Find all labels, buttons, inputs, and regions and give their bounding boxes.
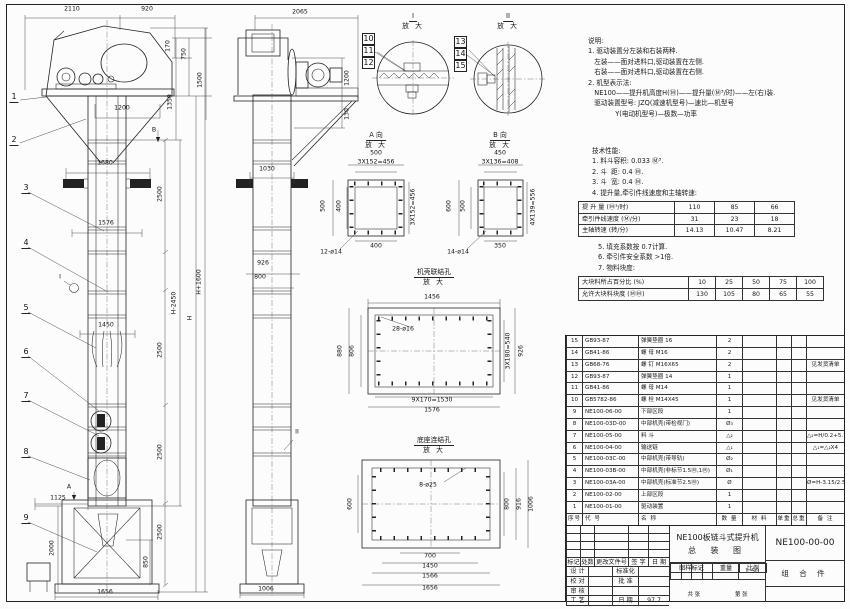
view-A-detail [333, 165, 409, 249]
table-cell: NE100-05-00 [582, 431, 638, 443]
shell-holes-title: 机壳联结孔放 大 [414, 268, 454, 286]
title-block-revision-area: 标记处数更改文件号签 字日 期 设 计标准化校 对批 准审 核工 艺日 期97.… [566, 526, 669, 602]
table-cell: 签 字 [628, 558, 648, 567]
table-cell: GB93-87 [582, 336, 638, 348]
dim-label: 750 [181, 48, 188, 60]
table-cell [628, 534, 648, 542]
table-row [566, 550, 669, 558]
table-cell [806, 372, 844, 384]
table-cell [638, 567, 669, 577]
table-cell: 螺 母 M14 [638, 383, 716, 395]
table-cell: 97.7 [638, 596, 669, 606]
table-cell [791, 395, 806, 407]
table-row: 7NE100-05-00料 斗△₂△₂=H/0.2+5.75 [566, 431, 844, 443]
dim-label: 1566 [422, 573, 438, 580]
text-line: 1. 料斗容积: 0.033 Ⓜ³. [592, 156, 697, 166]
table-cell [742, 407, 776, 419]
dim-label: 3X152=456 [410, 189, 417, 226]
dim-label: 600 [347, 498, 354, 510]
part-balloon: 11 [362, 45, 375, 57]
table-cell: 标准化 [612, 567, 638, 577]
view-B-title: B 向放 大 [489, 131, 511, 149]
table-cell: 更改文件号 [594, 558, 628, 567]
table-cell: 13 [566, 360, 582, 372]
table-cell [628, 526, 648, 534]
bom-table: 15GB93-87弹簧垫圈 16214GB41-86螺 母 M16213GB68… [565, 335, 844, 526]
dim-label: 1125 [50, 495, 66, 502]
table-cell [791, 360, 806, 372]
table-cell: GB41-86 [582, 348, 638, 360]
notes-block: 说明:1. 驱动装置分左装和右装两种. 左装——面对进料口,驱动装置在左侧. 右… [588, 36, 775, 119]
dim-label: 1456 [424, 294, 440, 301]
table-row [566, 534, 669, 542]
table-cell: 数 量 [716, 514, 742, 526]
tech-spec-block: 技术性能:1. 料斗容积: 0.033 Ⓜ³.2. 斗 距: 0.4 Ⓜ.3. … [592, 146, 697, 198]
table-cell: 螺 母 M16 [638, 348, 716, 360]
table-cell: 14.13 [674, 225, 714, 237]
text-line: 4. 提升量,牵引件线速度和主轴转速: [592, 188, 697, 198]
table-cell [806, 419, 844, 431]
table-cell: 材 料 [742, 514, 776, 526]
table-cell [566, 526, 580, 534]
table-cell: GB41-86 [582, 383, 638, 395]
table-cell [776, 490, 791, 502]
table-cell [776, 407, 791, 419]
table-cell: NE100-02-00 [582, 490, 638, 502]
dim-label: 1030 [259, 166, 275, 173]
table-cell [580, 550, 594, 558]
detail-I-title: I放 大 [402, 12, 424, 30]
table-cell [806, 490, 844, 502]
drawing-sheet: 2110920170750135015001200B168025001576H+… [0, 0, 850, 609]
table-cell [806, 336, 844, 348]
dim-label: B [152, 127, 156, 134]
text-line: 左装——面对进料口,驱动装置在左侧. [588, 57, 775, 67]
text-line: 说明: [588, 36, 775, 46]
table-cell: Ø₁ [716, 466, 742, 478]
table-cell [806, 407, 844, 419]
view-B-detail [459, 165, 527, 249]
dim-label: 2500 [157, 186, 164, 202]
table-cell: 牵引件线速度 (Ⓜ/分) [578, 214, 674, 226]
table-cell: 弹簧垫圈 16 [638, 336, 716, 348]
table-cell: △₁=△₂X4 [806, 443, 844, 455]
table-cell: 85 [714, 202, 754, 214]
table-cell: 130 [688, 289, 715, 301]
table-cell [791, 466, 806, 478]
table-cell [742, 502, 776, 514]
table-cell: 料 斗 [638, 431, 716, 443]
stamp-area: 图样标记重量比例 1:50 [670, 563, 765, 590]
title-block-right: NE100-00-00 组 合 件 [765, 526, 844, 602]
table-row: 12GB93-87弹簧垫圈 141 [566, 372, 844, 384]
table-cell: 中部机壳(带检视门) [638, 419, 716, 431]
table-cell: 见发货清单 [806, 395, 844, 407]
table-row: 6NE100-04-00输送链△₁△₁=△₂X4 [566, 443, 844, 455]
dim-label: II [295, 429, 299, 436]
table-cell: 中部机壳(带导轨) [638, 454, 716, 466]
table-cell [776, 360, 791, 372]
dim-label: 2110 [64, 6, 80, 13]
text-line: 右装——面对进料口,驱动装置在右侧. [588, 67, 775, 77]
part-balloon: 14 [454, 48, 467, 60]
dim-label: H [187, 316, 194, 321]
table-cell [742, 443, 776, 455]
view-A-title: A 向放 大 [365, 131, 387, 149]
side-view [234, 15, 358, 598]
table-cell: Ø₃ [716, 419, 742, 431]
table-cell: △₂=H/0.2+5.75 [806, 431, 844, 443]
dim-label: 1450 [98, 322, 114, 329]
dim-label: 1200 [114, 105, 130, 112]
table-cell: △₂ [716, 431, 742, 443]
table-row: 审 核 [566, 587, 669, 597]
table-cell: GB93-87 [582, 372, 638, 384]
table-cell: 4 [566, 466, 582, 478]
table-cell: Ø=H-3.15/2.5 [806, 478, 844, 490]
dim-label: 2065 [292, 9, 308, 16]
title-block: 标记处数更改文件号签 字日 期 设 计标准化校 对批 准审 核工 艺日 期97.… [565, 525, 843, 601]
table-cell: Ø [716, 478, 742, 490]
table-cell: 序号 [566, 514, 582, 526]
part-classification: 组 合 件 [766, 561, 844, 587]
table-row [566, 526, 669, 534]
text-line: Y(电动机型号)—极数—功率 [588, 109, 775, 119]
table-cell: 1 [716, 502, 742, 514]
table-cell [580, 534, 594, 542]
table-row: 3NE100-03A-00中部机壳(标准节2.5Ⓜ)ØØ=H-3.15/2.5 [566, 478, 844, 490]
table-row [566, 542, 669, 550]
table-cell [806, 383, 844, 395]
dim-label: 1576 [424, 407, 440, 414]
front-view [27, 20, 174, 596]
table-row: 10GB5782-86螺 栓 M14X451见发货清单 [566, 395, 844, 407]
text-line: 驱动装置型号: JZQ(减速机型号)—速比—机型号 [588, 98, 775, 108]
part-balloon: 12 [362, 57, 375, 69]
dim-label: 12-ø14 [320, 249, 342, 256]
table-cell [806, 502, 844, 514]
table-cell: 18 [754, 214, 794, 226]
dim-label: 4X139=556 [530, 189, 537, 226]
table-cell [776, 395, 791, 407]
table-cell: NE100-06-00 [582, 407, 638, 419]
table-cell [742, 431, 776, 443]
table-cell [776, 478, 791, 490]
table-cell: 2 [716, 348, 742, 360]
drawing-type: 总 装 图 [670, 544, 765, 557]
table-row: 图样标记重量比例 [670, 564, 766, 573]
table-cell [580, 542, 594, 550]
table-cell [648, 542, 669, 550]
table-row: 标记处数更改文件号签 字日 期 [566, 558, 669, 567]
table-row: 牵引件线速度 (Ⓜ/分)312318 [578, 214, 794, 226]
dim-label: 926 [257, 260, 269, 267]
dim-label: 1200 [344, 70, 351, 86]
product-name: NE100板链斗式提升机 [670, 531, 765, 544]
table-cell: 大块料所占百分比 (%) [578, 277, 688, 289]
table-cell [566, 534, 580, 542]
dim-label: 1006 [528, 496, 535, 512]
table-cell [594, 526, 628, 534]
table-cell: 1 [716, 395, 742, 407]
dim-label: 2000 [49, 540, 56, 556]
table-cell: 校 对 [566, 577, 588, 587]
table-cell: 处数 [580, 558, 594, 567]
table-cell: 55 [796, 289, 823, 301]
table-cell: 下部区段 [638, 407, 716, 419]
table-row: 8NE100-03D-00中部机壳(带检视门)Ø₃ [566, 419, 844, 431]
table-cell: GB68-76 [582, 360, 638, 372]
revision-header-row: 标记处数更改文件号签 字日 期 [566, 558, 669, 567]
table-cell: 螺 钉 M16X65 [638, 360, 716, 372]
table-cell [742, 466, 776, 478]
table-cell: 23 [714, 214, 754, 226]
table-cell: 75 [769, 277, 796, 289]
dim-label: 1450 [422, 563, 438, 570]
table-cell: 比例 [739, 564, 766, 573]
part-balloon: 2 [9, 136, 18, 146]
shell-holes-detail [349, 299, 515, 407]
dim-label: 350 [494, 243, 506, 250]
dim-label: 800 [504, 498, 511, 510]
dim-label: 1500 [197, 72, 204, 88]
table-cell [566, 542, 580, 550]
table-cell: 50 [742, 277, 769, 289]
table-cell [776, 502, 791, 514]
dim-label: H+1600 [196, 269, 203, 295]
table-cell [742, 419, 776, 431]
table-cell: △₁ [716, 443, 742, 455]
table-cell: 审 核 [566, 587, 588, 597]
table-cell: NE100-03D-00 [582, 419, 638, 431]
table-row: 工 艺日 期97.7 [566, 596, 669, 606]
sheet-total: 共 张 [670, 590, 718, 601]
table-cell: 日 期 [648, 558, 669, 567]
table-row: 9NE100-06-00下部区段1 [566, 407, 844, 419]
dim-label: 130 [344, 108, 351, 120]
dim-label: H-2450 [171, 292, 178, 315]
table-cell: GB5782-86 [582, 395, 638, 407]
table-cell: 标记 [566, 558, 580, 567]
text-line: 2. 机型表示法: [588, 78, 775, 88]
table-cell [791, 502, 806, 514]
table-cell [806, 454, 844, 466]
dim-label: 700 [424, 553, 436, 560]
dim-label: 800 [254, 274, 266, 281]
part-balloon: 13 [454, 36, 467, 48]
dim-label: 920 [141, 6, 153, 13]
table-cell: 输送链 [638, 443, 716, 455]
table-cell: 总重 [791, 514, 806, 526]
table-cell [791, 407, 806, 419]
table-cell: 10.47 [714, 225, 754, 237]
table-cell: 弹簧垫圈 14 [638, 372, 716, 384]
table-cell [776, 383, 791, 395]
table-cell: 66 [754, 202, 794, 214]
table-cell [588, 577, 612, 587]
table-cell [742, 454, 776, 466]
detail-I [372, 40, 454, 116]
table-cell [594, 542, 628, 550]
revision-empty-rows [566, 526, 669, 558]
dim-label: 9X170=1530 [412, 397, 453, 404]
table-cell: 日 期 [612, 596, 638, 606]
table-cell: 工 艺 [566, 596, 588, 606]
dim-label: 500 [370, 150, 382, 157]
table-row: 提 升 量 (Ⓜ³/时)1108566 [578, 202, 794, 214]
dim-label: 500 [320, 200, 327, 212]
table-cell: 2 [716, 336, 742, 348]
front-view-dims [20, 15, 212, 600]
dim-label: 3X136=408 [482, 159, 519, 166]
table-cell: 10 [688, 277, 715, 289]
table-cell: NE100-04-00 [582, 443, 638, 455]
table-cell: 105 [715, 289, 742, 301]
balloon-leaders [375, 52, 495, 76]
table-cell: 8 [566, 419, 582, 431]
table-cell [648, 550, 669, 558]
dim-label: 600 [446, 200, 453, 212]
dim-label: 916 [516, 498, 523, 510]
table-cell: 10 [566, 395, 582, 407]
table-cell: 单重 [776, 514, 791, 526]
table-cell: 100 [796, 277, 823, 289]
text-line: 3. 斗 宽: 0.4 Ⓜ. [592, 177, 697, 187]
drawing-title: NE100板链斗式提升机 总 装 图 [670, 526, 765, 563]
table-cell: NE100-01-00 [582, 502, 638, 514]
table-cell [612, 587, 638, 597]
table-cell [791, 372, 806, 384]
part-balloon: 9 [21, 514, 30, 524]
table-cell [742, 383, 776, 395]
table-cell: 批 准 [612, 577, 638, 587]
table-cell [791, 431, 806, 443]
dim-label: 400 [336, 200, 343, 212]
table-cell [806, 348, 844, 360]
table-cell [742, 478, 776, 490]
table-cell: 1 [716, 383, 742, 395]
table-row: 15GB93-87弹簧垫圈 162 [566, 336, 844, 348]
table-cell: NE100-03C-00 [582, 454, 638, 466]
dim-label: 1576 [98, 220, 114, 227]
table-cell [580, 526, 594, 534]
table-row: 1NE100-01-00驱动装置1 [566, 502, 844, 514]
dim-label: 500 [460, 200, 467, 212]
table-cell [594, 534, 628, 542]
part-balloon: 3 [21, 184, 30, 194]
text-line: 1. 驱动装置分左装和右装两种. [588, 46, 775, 56]
dim-label: 8-ø25 [419, 482, 437, 489]
table-cell: 图样标记 [670, 564, 712, 573]
dim-label: 2500 [157, 342, 164, 358]
table-cell: 5 [566, 454, 582, 466]
table-cell [648, 534, 669, 542]
table-cell [638, 577, 669, 587]
table-row: 允许大块料块度 (ⓂⓂ)130105806555 [578, 289, 823, 301]
dim-label: 850 [143, 556, 150, 568]
table-row: 主轴转速 (转/分)14.1310.478.21 [578, 225, 794, 237]
dim-label: 1350 [167, 94, 174, 110]
text-line: 技术性能: [592, 146, 697, 156]
table-cell [628, 550, 648, 558]
text-line: NE100——提升机高度H(Ⓜ)——提升量(Ⓜ³/时)——左(右)装. [588, 88, 775, 98]
table-cell: 8.21 [754, 225, 794, 237]
table-cell [628, 542, 648, 550]
table-cell: 65 [769, 289, 796, 301]
table-row: 大块料所占百分比 (%)10255075100 [578, 277, 823, 289]
table-row: 序号代 号名 称数 量材 料单重总重备 注 [566, 514, 844, 526]
table-cell: 3 [566, 478, 582, 490]
table-cell [776, 372, 791, 384]
table-row: 14GB41-86螺 母 M162 [566, 348, 844, 360]
table-cell [648, 526, 669, 534]
part-balloon: 10 [362, 33, 375, 45]
table-cell [776, 443, 791, 455]
table-cell: 14 [566, 348, 582, 360]
title-block-center: NE100板链斗式提升机 总 装 图 图样标记重量比例 1:50 共 张 第 张 [669, 526, 765, 602]
table-cell: 见发货清单 [806, 360, 844, 372]
table-row: 4NE100-03B-00中部机壳(非标节1.5Ⓜ,1Ⓜ)Ø₁ [566, 466, 844, 478]
part-balloon: 1 [9, 93, 18, 103]
table-cell [742, 372, 776, 384]
dim-label: 3X152=456 [358, 159, 395, 166]
part-balloon: 7 [21, 392, 30, 402]
table-cell: 允许大块料块度 (ⓂⓂ) [578, 289, 688, 301]
lump-size-table: 大块料所占百分比 (%)10255075100允许大块料块度 (ⓂⓂ)13010… [578, 276, 824, 301]
dim-label: I [59, 274, 61, 281]
part-balloon: 8 [21, 448, 30, 458]
dim-label: 880 [337, 345, 344, 357]
table-cell [742, 490, 776, 502]
part-balloon: 15 [454, 60, 467, 72]
text-line: 6. 牵引件安全系数 >1倍. [598, 252, 673, 262]
dim-label: 1656 [97, 589, 113, 596]
dim-label: 806 [349, 345, 356, 357]
dim-label: 3X180=540 [505, 333, 512, 370]
table-cell [742, 395, 776, 407]
stamp-header-row: 图样标记重量比例 [670, 563, 767, 573]
table-cell [791, 454, 806, 466]
table-cell [791, 348, 806, 360]
table-cell: 代 号 [582, 514, 638, 526]
dim-label: 28-ø16 [392, 326, 414, 333]
table-cell: 上部区段 [638, 490, 716, 502]
table-cell: 提 升 量 (Ⓜ³/时) [578, 202, 674, 214]
table-cell: 名 称 [638, 514, 716, 526]
table-cell: Ø₂ [716, 454, 742, 466]
part-balloon: 5 [21, 304, 30, 314]
table-cell: 重量 [712, 564, 739, 573]
base-holes-detail [358, 460, 528, 585]
table-cell: 9 [566, 407, 582, 419]
table-cell: 驱动装置 [638, 502, 716, 514]
table-cell [742, 348, 776, 360]
part-balloon: 4 [21, 239, 30, 249]
table-cell: 设 计 [566, 567, 588, 577]
table-cell: 2 [566, 490, 582, 502]
dim-label: 2500 [157, 524, 164, 540]
table-cell: 31 [674, 214, 714, 226]
part-balloon: 6 [21, 348, 30, 358]
dim-label: 450 [494, 150, 506, 157]
table-cell: 15 [566, 336, 582, 348]
table-cell: 1 [716, 490, 742, 502]
detail-II [469, 42, 546, 116]
table-cell: NE100-03A-00 [582, 478, 638, 490]
table-cell: 7 [566, 431, 582, 443]
text-line: 2. 斗 距: 0.4 Ⓜ. [592, 167, 697, 177]
table-cell [594, 550, 628, 558]
